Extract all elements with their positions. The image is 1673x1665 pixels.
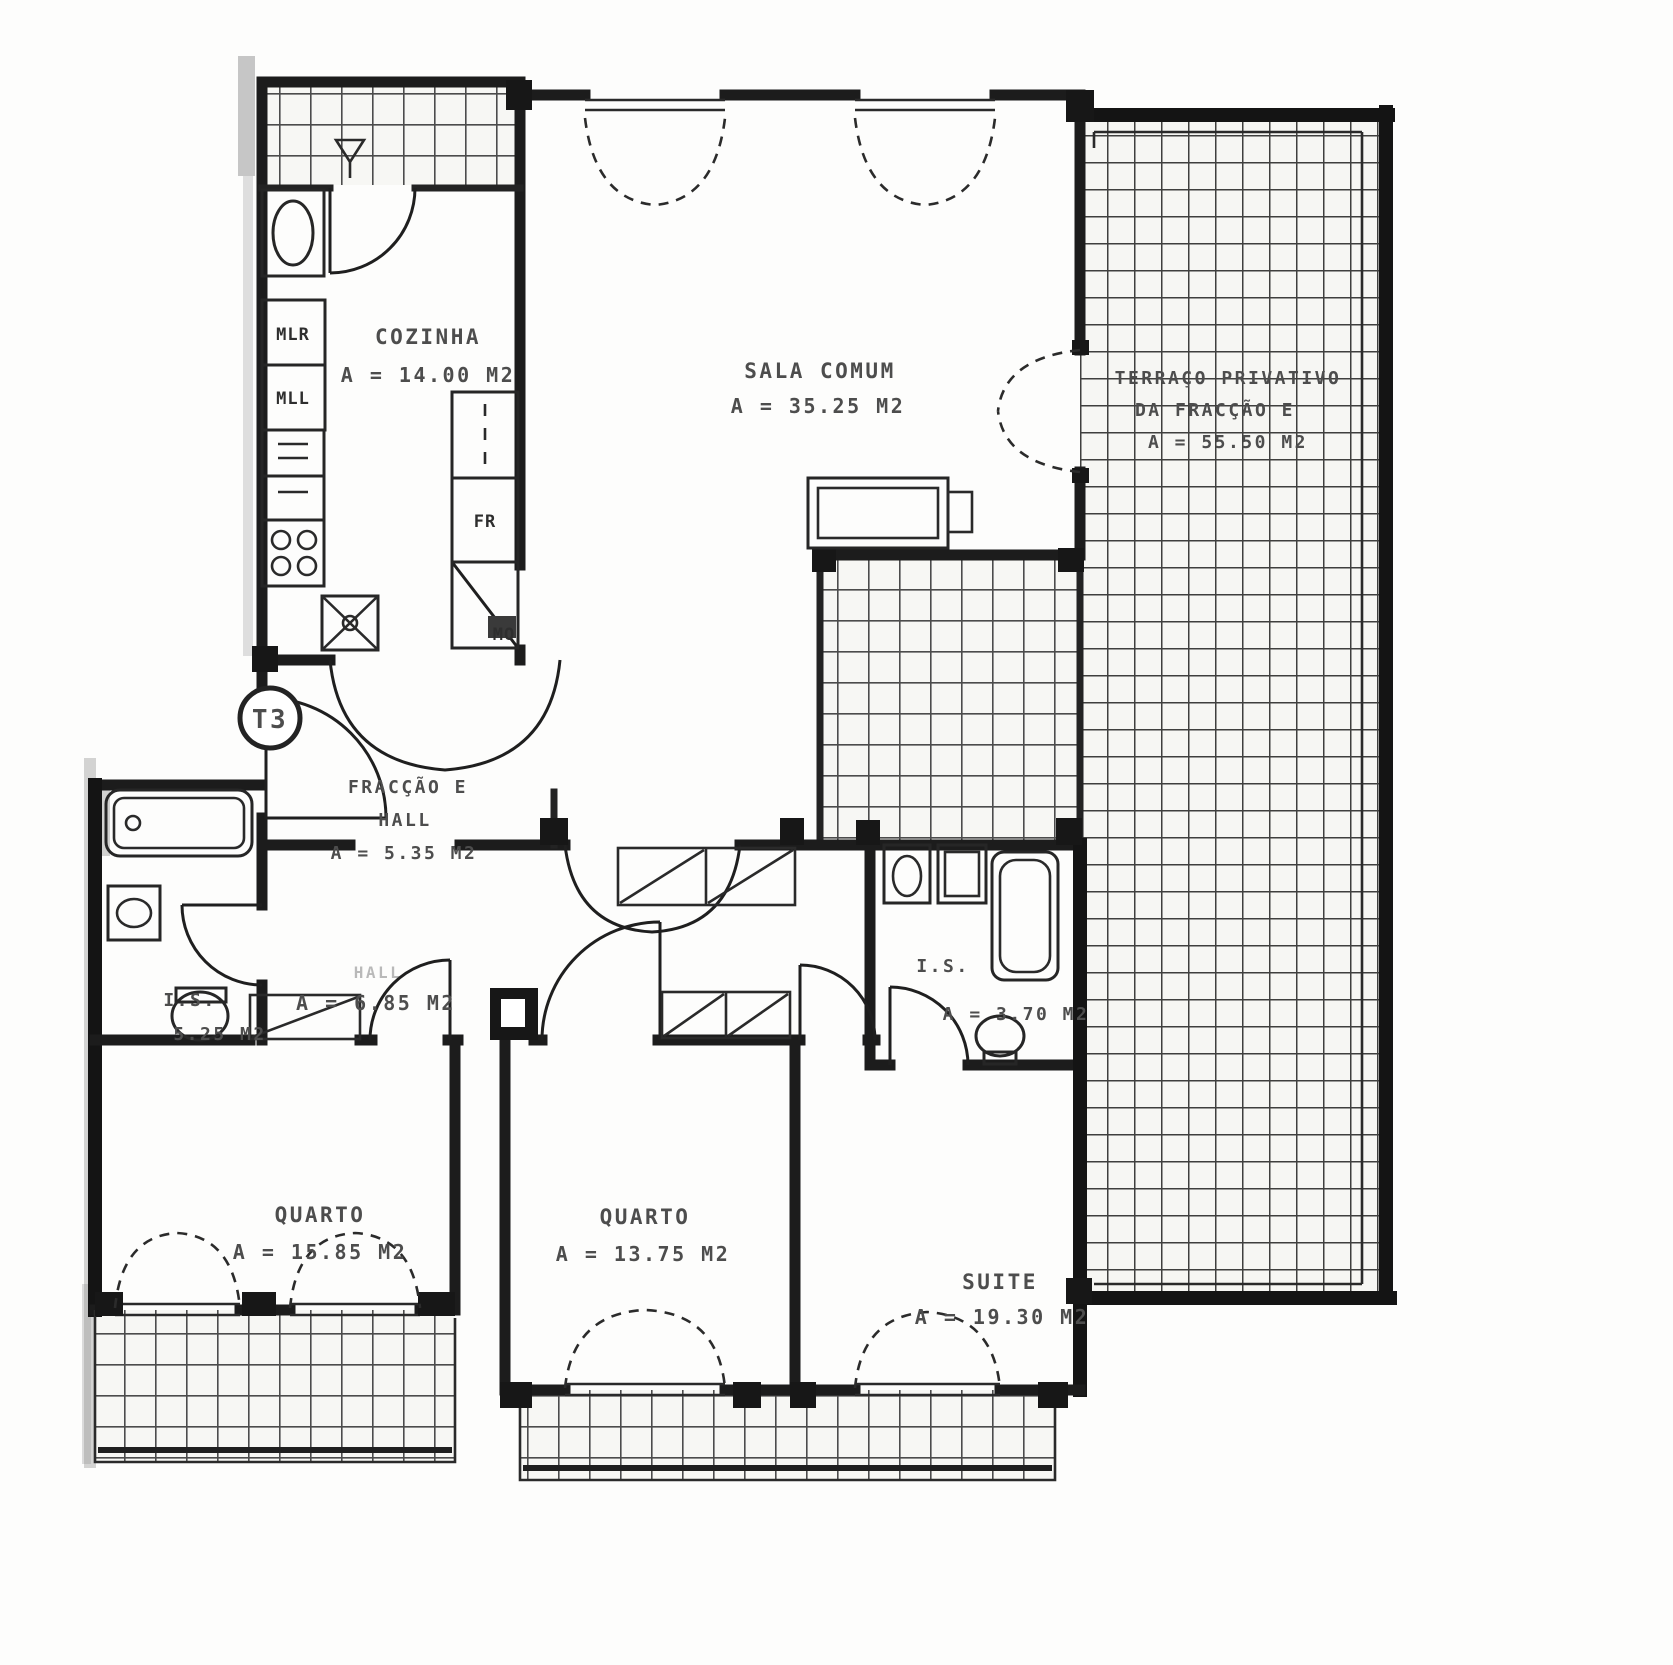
floor-plan: T3 COZINHA A = 14.00 M2 SALA COMUM A = 3…	[0, 0, 1673, 1665]
wardrobe-middle-bottom	[662, 992, 790, 1038]
label-mll: MLL	[276, 389, 310, 409]
laundry-tub	[262, 190, 324, 276]
label-terraco-1: TERRAÇO PRIVATIVO	[1115, 368, 1342, 389]
label-terraco-2: DA FRACÇÃO E	[1135, 398, 1295, 421]
label-mlr: MLR	[276, 325, 310, 345]
scanned-floor-plan-page: T3 COZINHA A = 14.00 M2 SALA COMUM A = 3…	[0, 0, 1673, 1665]
scan-noise	[82, 56, 255, 1468]
label-is-dir-area: A = 3.70 M2	[943, 1004, 1090, 1025]
label-mo: MO	[493, 625, 515, 645]
oven-unit	[262, 476, 324, 520]
label-is-esq: I.S.	[163, 990, 216, 1011]
terrace-tiles	[1080, 115, 1390, 1298]
label-hall-entrada: HALL	[378, 810, 431, 831]
counter-unit	[262, 430, 324, 476]
label-hall-faint: HALL	[354, 963, 403, 982]
label-is-esq-area: 5.25 M2	[173, 1024, 266, 1045]
label-sala-area: A = 35.25 M2	[731, 394, 906, 418]
type-badge: T3	[240, 688, 300, 748]
bidet	[884, 845, 930, 903]
label-fraccao: FRACÇÃO E	[348, 775, 468, 798]
label-quarto-meio: QUARTO	[600, 1205, 691, 1229]
label-terraco-area: A = 55.50 M2	[1148, 432, 1308, 453]
label-fr: FR	[474, 512, 496, 532]
label-hall-entrada-area: A = 5.35 M2	[331, 843, 478, 864]
type-badge-label: T3	[252, 705, 288, 735]
label-suite: SUITE	[962, 1270, 1038, 1294]
label-quarto-esq-area: A = 15.85 M2	[233, 1240, 408, 1264]
label-quarto-meio-area: A = 13.75 M2	[556, 1242, 731, 1266]
label-sala: SALA COMUM	[744, 359, 895, 383]
balcony-top-left-tiles	[262, 82, 520, 185]
tiled-terraces	[95, 82, 1390, 1480]
stove	[262, 520, 324, 586]
label-hall-area: A = 6.85 M2	[296, 991, 456, 1015]
label-cozinha-area: A = 14.00 M2	[341, 363, 516, 387]
label-is-dir: I.S.	[916, 956, 969, 977]
balcony-bottom-left-tiles	[95, 1310, 455, 1462]
patio-tiles	[820, 555, 1080, 845]
label-cozinha: COZINHA	[375, 325, 481, 349]
label-suite-area: A = 19.30 M2	[915, 1305, 1090, 1329]
wardrobe-middle-top	[618, 848, 795, 905]
label-quarto-esq: QUARTO	[275, 1203, 366, 1227]
bathtub-left	[106, 790, 252, 856]
